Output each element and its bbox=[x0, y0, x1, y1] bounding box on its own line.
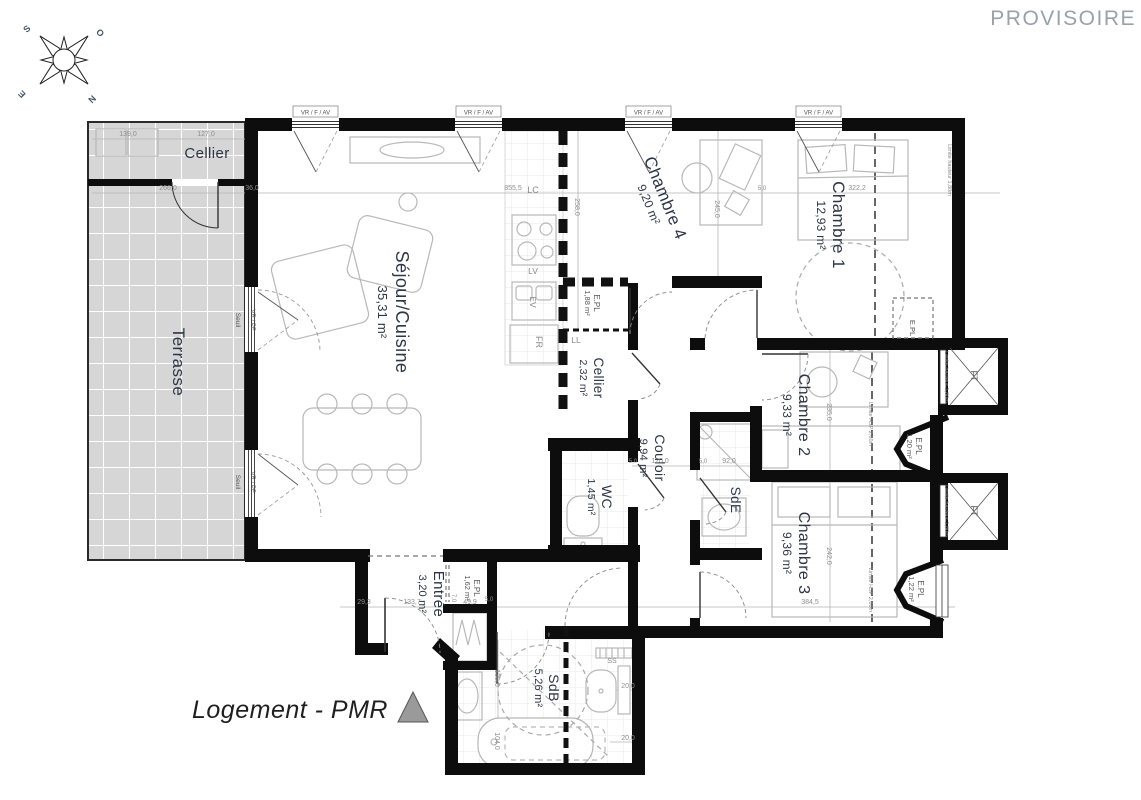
compass-n: N bbox=[86, 93, 98, 105]
dim: 127,0 bbox=[197, 131, 215, 138]
seuil-label-1: Seuil bbox=[234, 313, 241, 328]
provisoire-watermark: PROVISOIRE bbox=[990, 7, 1136, 30]
label-ss: SS bbox=[607, 658, 617, 665]
room-label-cellier-ext: Cellier bbox=[184, 145, 229, 162]
dim: 384,5 bbox=[801, 599, 819, 606]
svg-text:12,93 m²: 12,93 m² bbox=[814, 201, 828, 250]
svg-text:Chambre 2: Chambre 2 bbox=[795, 374, 812, 457]
svg-text:9,36 m²: 9,36 m² bbox=[780, 532, 794, 574]
dim: 138,0 bbox=[493, 669, 500, 687]
floor-plan-page: S O E N PROVISOIRE Logement - PMR Terras… bbox=[0, 0, 1141, 800]
svg-text:9,33 m²: 9,33 m² bbox=[780, 394, 794, 436]
compass-e: E bbox=[16, 88, 27, 99]
svg-text:2,32 m²: 2,32 m² bbox=[577, 360, 589, 397]
svg-text:Chambre 3: Chambre 3 bbox=[795, 512, 812, 595]
limite-hauteur-1: Limite hauteur 1,80m bbox=[946, 144, 952, 196]
svg-text:E.PL: E.PL bbox=[472, 579, 481, 597]
desk-ch2 bbox=[800, 352, 888, 407]
svg-text:Séjour/Cuisine: Séjour/Cuisine bbox=[392, 251, 412, 374]
label-ft-1: FT bbox=[969, 371, 979, 382]
cellier-door-opening bbox=[172, 179, 218, 186]
svg-text:9,94 m²: 9,94 m² bbox=[637, 439, 649, 478]
dim: 5,0 bbox=[629, 459, 638, 465]
room-label-cellier-int: Cellier 2,32 m² bbox=[577, 357, 606, 398]
svg-text:Chambre 1: Chambre 1 bbox=[829, 181, 848, 269]
svg-text:35,31 m²: 35,31 m² bbox=[375, 286, 390, 339]
sofa-2 bbox=[345, 214, 434, 294]
dim: 49,9 bbox=[463, 599, 477, 606]
room-label-chambre4: Chambre 4 9,20 m² bbox=[626, 154, 690, 248]
dim: 322,2 bbox=[848, 185, 866, 192]
limit-lines bbox=[872, 133, 875, 624]
limite-hauteur-3: Limite hauteur 1,80m bbox=[943, 485, 949, 537]
svg-text:1,20 m²: 1,20 m² bbox=[905, 433, 914, 459]
limite-hsp-1: Limite HSP 2,60m bbox=[867, 402, 873, 447]
svg-text:1,62 m²: 1,62 m² bbox=[463, 575, 472, 601]
closet-label-epl2: E.PL 1,62 m² bbox=[463, 575, 481, 601]
sde-floor bbox=[700, 422, 750, 548]
dim: 133,7 bbox=[403, 599, 421, 606]
closet-label-epl3: E.PL 1,20 m² bbox=[905, 433, 923, 459]
lamp bbox=[399, 193, 417, 211]
tv-cabinet bbox=[350, 137, 480, 163]
dim: 5,0 bbox=[699, 459, 708, 465]
terrasse-floor bbox=[88, 185, 245, 560]
label-ll: LL bbox=[571, 335, 581, 345]
label-ft-2: FT bbox=[969, 506, 979, 517]
dim: 258,0 bbox=[573, 198, 580, 216]
sdb-toilet bbox=[586, 670, 616, 712]
label-lv: LV bbox=[528, 266, 538, 276]
limite-hsp-2: Limite HSP 2,60m bbox=[867, 568, 873, 613]
dim: 20,0 bbox=[621, 735, 635, 742]
entrance-triangle-marker bbox=[398, 692, 428, 722]
vrpf-label-2: VR / PF bbox=[249, 471, 255, 492]
chair-ch4 bbox=[682, 163, 712, 193]
dim: 120,0 bbox=[651, 458, 669, 465]
closet-label-epl4: E.PL 1,22 m² bbox=[907, 576, 925, 602]
seuil-label-2: Seuil bbox=[234, 475, 241, 490]
dim: 92,0 bbox=[722, 458, 736, 465]
svg-text:Entrée: Entrée bbox=[430, 571, 447, 618]
label-lc: LC bbox=[527, 185, 539, 195]
bed-ch2 bbox=[758, 426, 900, 472]
limite-hauteur-2: Limite hauteur 1,80m bbox=[943, 351, 949, 403]
svg-text:3,20 m²: 3,20 m² bbox=[416, 575, 428, 614]
room-label-sdb: SdB 5,26 m² bbox=[532, 669, 562, 708]
svg-text:SdB: SdB bbox=[546, 674, 562, 702]
window-label-1: VR / F / AV bbox=[301, 111, 330, 117]
svg-text:E.PL: E.PL bbox=[914, 437, 923, 455]
window-label-4: VR / F / AV bbox=[804, 111, 833, 117]
dim: 266,0 bbox=[159, 185, 177, 192]
room-label-entree: Entrée 3,20 m² bbox=[416, 571, 447, 618]
plan-title: Logement - PMR bbox=[192, 696, 388, 724]
dim: 235,0 bbox=[825, 403, 832, 421]
svg-text:Cellier: Cellier bbox=[591, 357, 606, 398]
room-label-sejour: Séjour/Cuisine 35,31 m² bbox=[375, 251, 412, 374]
svg-text:WC: WC bbox=[599, 485, 615, 509]
svg-text:E.PL: E.PL bbox=[592, 294, 601, 312]
vrpf-label-1: VR / PF bbox=[249, 309, 255, 330]
label-ev: EV bbox=[528, 296, 538, 308]
room-label-sde: SdE bbox=[728, 487, 743, 514]
compass-o: O bbox=[94, 27, 106, 39]
window-label-3: VR / F / AV bbox=[634, 111, 663, 117]
dim: 20,0 bbox=[621, 683, 635, 690]
dim: 36,0 bbox=[245, 185, 259, 192]
sofa bbox=[270, 243, 371, 341]
dim: 29,3 bbox=[357, 599, 371, 606]
dim: 855,5 bbox=[504, 185, 522, 192]
dining-table bbox=[303, 408, 421, 470]
room-label-chambre2: Chambre 2 9,33 m² bbox=[780, 374, 812, 457]
dim: 5,0 bbox=[758, 186, 767, 192]
room-label-chambre1: Chambre 1 12,93 m² bbox=[814, 181, 848, 269]
dim: 7,0 bbox=[450, 594, 456, 603]
svg-text:1,88 m²: 1,88 m² bbox=[583, 290, 592, 316]
floorplan-canvas: S O E N PROVISOIRE Logement - PMR Terras… bbox=[0, 0, 1141, 800]
dim: 245,0 bbox=[713, 200, 720, 218]
dim: 242,0 bbox=[825, 547, 832, 565]
label-fr: FR bbox=[534, 336, 544, 348]
dim: 139,0 bbox=[119, 131, 137, 138]
closet-label-epl1: E.PL 1,88 m² bbox=[583, 290, 601, 316]
room-label-terrasse: Terrasse bbox=[169, 328, 188, 396]
svg-text:1,45 m²: 1,45 m² bbox=[585, 479, 597, 516]
svg-text:5,26 m²: 5,26 m² bbox=[532, 669, 544, 708]
closet-label-epl5: E.PL bbox=[908, 320, 917, 336]
svg-text:E.PL: E.PL bbox=[916, 580, 925, 598]
dim: 5,0 bbox=[485, 597, 494, 603]
window-label-2: VR / F / AV bbox=[464, 111, 493, 117]
compass-rose: S O E N bbox=[16, 23, 106, 105]
svg-text:1,22 m²: 1,22 m² bbox=[907, 576, 916, 602]
kitchen-floor bbox=[505, 131, 563, 365]
room-label-chambre3: Chambre 3 9,36 m² bbox=[780, 512, 812, 595]
compass-s: S bbox=[21, 23, 32, 34]
dim: 104,0 bbox=[493, 732, 500, 750]
